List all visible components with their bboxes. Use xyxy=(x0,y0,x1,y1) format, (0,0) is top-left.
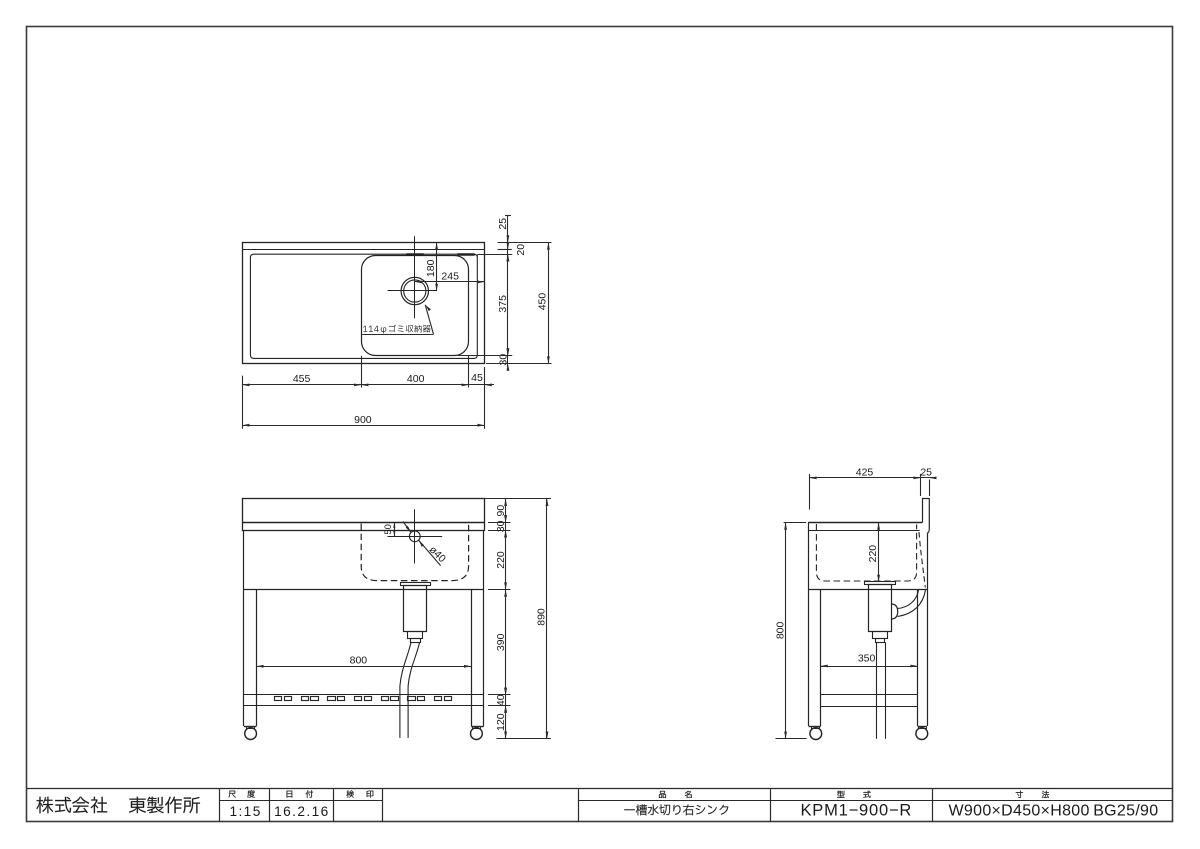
svg-text:900: 900 xyxy=(354,414,372,426)
svg-text:KPM1−900−R: KPM1−900−R xyxy=(800,802,912,820)
svg-text:120: 120 xyxy=(495,713,507,731)
svg-text:25: 25 xyxy=(920,466,932,478)
svg-text:25: 25 xyxy=(497,218,509,230)
svg-text:450: 450 xyxy=(537,293,549,311)
svg-text:350: 350 xyxy=(858,653,876,665)
svg-text:220: 220 xyxy=(495,551,507,569)
svg-text:40: 40 xyxy=(495,694,507,706)
svg-text:220: 220 xyxy=(867,545,879,563)
svg-text:455: 455 xyxy=(293,373,311,385)
svg-text:1:15: 1:15 xyxy=(229,804,261,819)
svg-text:890: 890 xyxy=(535,608,547,626)
svg-text:800: 800 xyxy=(350,655,368,667)
svg-text:45: 45 xyxy=(471,372,483,384)
svg-text:180: 180 xyxy=(425,259,437,277)
svg-text:800: 800 xyxy=(775,621,787,639)
svg-text:W900×D450×H800 BG25/90: W900×D450×H800 BG25/90 xyxy=(949,803,1159,820)
svg-text:90: 90 xyxy=(495,505,507,517)
svg-text:50: 50 xyxy=(383,524,394,535)
svg-text:16.2.16: 16.2.16 xyxy=(274,804,329,819)
svg-text:390: 390 xyxy=(495,633,507,651)
svg-text:400: 400 xyxy=(407,373,425,385)
svg-text:375: 375 xyxy=(497,295,509,313)
svg-text:245: 245 xyxy=(441,271,459,283)
svg-text:20: 20 xyxy=(515,244,527,256)
svg-text:425: 425 xyxy=(856,466,874,478)
